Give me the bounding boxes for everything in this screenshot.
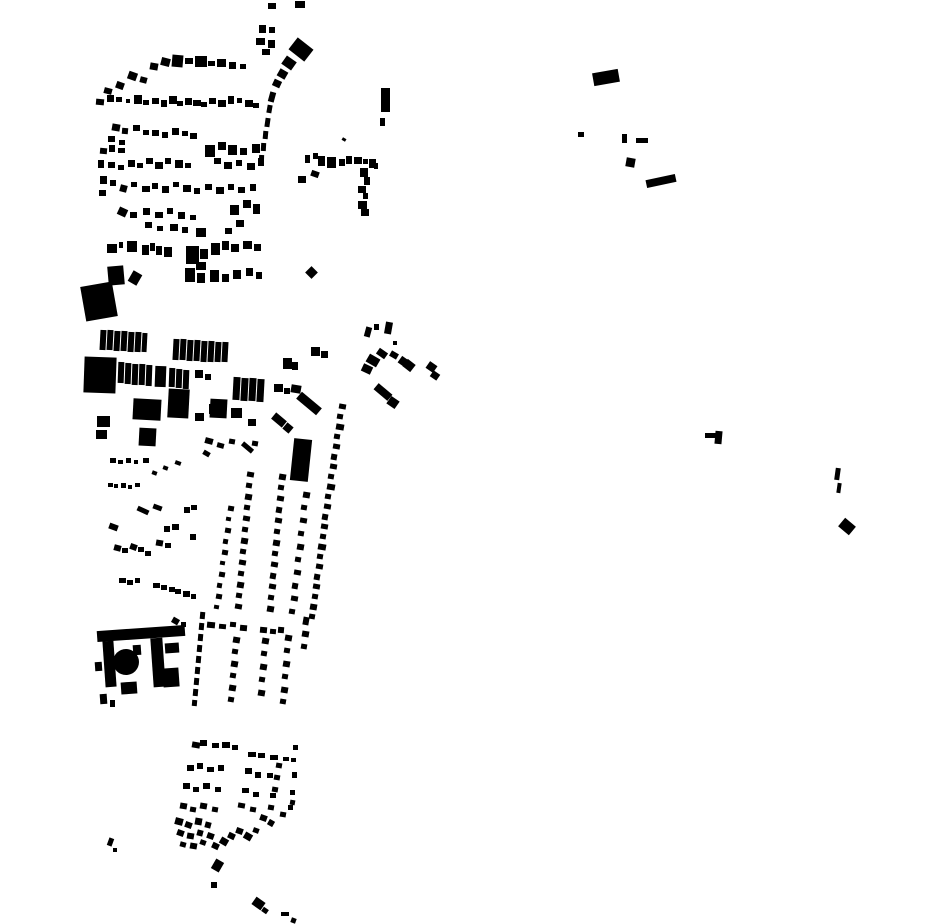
building-footprint [230,205,239,215]
building-footprint [111,123,120,131]
building-footprint [95,662,103,671]
building-footprint [245,493,253,500]
building-footprint [229,684,237,691]
building-footprint [331,454,338,461]
building-footprint [636,138,648,143]
building-footprint [212,807,219,813]
building-footprint [578,132,584,137]
building-footprint [346,156,352,164]
building-footprint [155,162,163,169]
building-footprint [358,201,367,209]
building-footprint [240,64,246,69]
building-footprint [253,103,259,108]
building-footprint [125,363,132,384]
building-footprint [279,473,287,480]
building-footprint [374,324,379,330]
building-footprint [135,483,140,487]
building-footprint [247,163,255,170]
building-footprint [270,755,278,760]
building-footprint [274,384,283,392]
building-footprint [289,609,296,615]
building-footprint [180,802,188,809]
building-footprint [207,767,214,772]
building-footprint [113,848,117,852]
building-footprint [311,347,320,356]
building-footprint [241,537,249,544]
building-footprint [284,388,290,394]
building-footprint [380,118,385,126]
building-footprint [177,101,183,106]
building-footprint [171,55,183,68]
building-footprint [167,208,173,214]
building-footprint [282,674,289,680]
building-footprint [214,605,220,610]
building-footprint [162,667,179,687]
building-footprint [196,656,202,663]
building-footprint [228,96,234,104]
building-footprint [146,158,153,164]
building-footprint [233,636,241,643]
building-footprint [221,342,228,362]
building-footprint [165,543,171,548]
building-footprint [622,134,627,143]
building-footprint [232,745,238,750]
building-footprint [361,209,369,216]
building-footprint [292,583,299,590]
building-footprint [242,788,249,793]
building-footprint [278,485,285,491]
building-footprint [114,484,118,488]
building-footprint [113,331,120,351]
building-footprint [222,274,229,282]
building-footprint [244,505,251,511]
building-footprint [327,157,336,168]
building-footprint [225,528,232,534]
building-footprint [172,339,179,360]
building-footprint [199,623,205,630]
building-footprint [242,527,249,533]
building-footprint [293,745,298,750]
building-footprint [173,182,179,187]
building-footprint [250,807,257,813]
building-footprint [328,474,335,480]
building-footprint [229,439,236,445]
building-footprint [248,378,256,401]
building-footprint [298,176,306,183]
building-footprint [246,268,253,276]
building-footprint [133,125,140,131]
building-footprint [236,160,242,166]
building-footprint [190,534,196,540]
building-footprint [169,96,177,104]
building-footprint [80,281,118,321]
building-footprint [127,580,133,585]
building-footprint [363,159,368,164]
building-footprint [193,340,200,361]
building-footprint [280,812,287,818]
building-footprint [116,97,122,102]
building-footprint [195,413,204,421]
building-footprint [256,38,265,45]
building-footprint [162,132,168,138]
building-footprint [119,242,123,248]
building-footprint [217,59,226,67]
building-footprint [186,340,193,361]
building-footprint [218,765,224,771]
building-footprint [107,95,114,102]
building-footprint [216,187,224,194]
building-footprint [132,364,139,385]
building-footprint [258,753,265,758]
building-footprint [190,133,197,139]
building-footprint [190,215,196,220]
building-footprint [283,660,291,667]
building-footprint [121,483,126,488]
building-footprint [161,585,167,590]
building-footprint [110,700,115,707]
building-footprint [248,419,256,426]
building-footprint [142,333,148,352]
building-footprint [225,228,232,234]
building-footprint [260,627,267,634]
building-footprint [393,341,397,345]
building-footprint [142,186,150,192]
building-footprint [196,262,206,270]
building-footprint [156,539,164,546]
building-footprint [245,100,253,107]
building-footprint [119,578,126,583]
building-footprint [285,634,293,641]
building-footprint [231,660,239,667]
building-footprint [196,228,206,237]
building-footprint [714,431,722,445]
building-footprint [224,162,232,169]
building-footprint [120,331,127,351]
building-footprint [283,358,292,369]
building-footprint [165,643,180,654]
building-footprint [194,817,202,825]
building-footprint [232,649,239,655]
building-footprint [226,517,232,522]
building-footprint [262,49,270,55]
building-footprint [170,224,178,231]
building-footprint [195,56,207,67]
building-footprint [334,434,341,440]
building-footprint [253,792,259,797]
building-footprint [108,162,115,168]
building-footprint [281,686,289,693]
building-footprint [219,624,226,630]
building-footprint [118,148,125,153]
building-footprint [96,430,107,439]
building-footprint [278,627,285,634]
building-footprint [187,832,195,839]
building-footprint [314,574,321,581]
building-footprint [126,99,130,103]
building-footprint [208,61,215,66]
building-footprint [109,145,115,152]
building-footprint [126,458,131,463]
building-footprint [339,159,345,166]
building-footprint [193,689,199,696]
building-footprint [281,912,289,916]
building-footprint [127,332,134,352]
building-footprint [201,102,207,107]
building-footprint [207,622,215,629]
building-footprint [122,548,128,553]
building-footprint [100,148,107,155]
building-footprint [110,458,116,463]
building-footprint [274,775,281,781]
building-footprint [143,100,149,105]
building-footprint [228,145,237,155]
building-footprint [273,539,281,546]
building-footprint [252,441,259,447]
building-footprint [121,681,138,694]
building-footprint [197,273,205,283]
building-footprint [267,773,273,778]
building-footprint [268,595,275,601]
building-footprint [220,561,226,566]
building-footprint [240,625,247,632]
building-footprint [143,130,149,135]
building-footprint [215,787,221,792]
building-footprint [175,589,181,594]
building-footprint [167,388,189,418]
building-footprint [183,591,190,597]
building-footprint [246,483,253,489]
building-footprint [183,370,190,389]
building-footprint [295,557,302,563]
building-footprint [305,155,310,163]
building-footprint [134,460,138,464]
building-footprint [302,630,310,637]
building-footprint [276,763,283,769]
building-footprint [256,379,264,402]
building-footprint [313,153,318,159]
building-footprint [181,622,186,627]
building-footprint [230,622,236,628]
footprint-layer [0,0,930,924]
building-footprint [198,634,204,641]
building-footprint [222,742,230,748]
building-footprint [283,757,289,761]
building-footprint [205,145,215,157]
building-footprint [182,227,188,233]
building-footprint [309,614,316,620]
building-footprint [295,1,305,8]
building-footprint-map [0,0,930,924]
building-footprint [184,507,190,513]
building-footprint [364,177,370,185]
building-footprint [191,505,197,510]
building-footprint [317,554,324,560]
building-footprint [130,212,137,218]
building-footprint [162,186,169,193]
building-footprint [157,226,163,231]
building-footprint [132,398,161,420]
building-footprint [276,507,283,514]
building-footprint [152,130,159,136]
building-footprint [209,404,217,414]
building-footprint [186,246,199,264]
building-footprint [211,882,217,888]
building-footprint [142,245,149,255]
building-footprint [216,594,223,600]
building-footprint [200,341,207,362]
building-footprint [358,186,366,193]
building-footprint [290,790,295,795]
building-footprint [118,362,125,383]
building-footprint [236,220,244,227]
building-footprint [337,414,344,420]
building-footprint [143,208,150,215]
building-footprint [205,184,212,190]
building-footprint [354,157,362,164]
building-footprint [218,142,226,150]
building-footprint [256,272,262,279]
building-footprint [145,551,151,556]
building-footprint [182,131,188,136]
building-footprint [135,578,140,583]
building-footprint [185,98,192,105]
building-footprint [245,768,252,774]
building-footprint [303,491,311,498]
building-footprint [152,183,158,189]
building-footprint [290,384,301,394]
building-footprint [187,765,194,771]
building-footprint [128,485,132,489]
building-footprint [231,408,242,418]
building-footprint [236,593,243,599]
building-footprint [191,594,196,599]
building-footprint [214,158,221,164]
building-footprint [128,160,135,167]
building-footprint [255,772,261,778]
building-footprint [268,805,275,811]
building-footprint [240,148,247,155]
building-footprint [248,752,256,757]
building-footprint [185,163,191,168]
building-footprint [214,342,221,362]
building-footprint [250,184,256,191]
building-footprint [119,140,125,145]
building-footprint [211,243,220,255]
building-footprint [258,689,266,696]
building-footprint [118,165,124,170]
building-footprint [237,98,242,103]
building-footprint [205,374,211,380]
map-background [0,0,930,924]
building-footprint [320,534,327,540]
building-footprint [238,187,245,193]
building-footprint [210,270,219,282]
building-footprint [200,740,207,746]
building-footprint [301,644,308,650]
building-footprint [263,131,269,139]
building-footprint [193,100,201,106]
building-footprint [217,583,223,589]
building-footprint [312,594,319,600]
building-footprint [185,58,193,64]
building-footprint [164,526,170,532]
building-footprint [310,603,318,610]
building-footprint [262,637,270,644]
building-footprint [230,673,237,679]
building-footprint [229,62,236,69]
building-footprint [118,460,123,464]
building-footprint [318,156,325,166]
building-footprint [291,758,296,762]
building-footprint [240,378,248,401]
building-footprint [274,529,281,535]
building-footprint [272,551,279,557]
building-footprint [108,483,113,487]
building-footprint [252,144,260,153]
building-footprint [267,605,275,612]
building-footprint [297,543,305,550]
building-footprint [260,663,268,670]
building-footprint [272,787,279,793]
building-footprint [197,763,203,769]
building-footprint [165,158,171,164]
building-footprint [150,243,155,251]
building-footprint [363,193,368,199]
building-footprint [259,25,266,33]
building-footprint [261,143,266,151]
building-footprint [195,667,201,674]
building-footprint [138,547,144,552]
building-footprint [127,241,137,252]
building-footprint [258,158,264,166]
building-footprint [254,244,261,251]
building-footprint [156,246,162,255]
building-footprint [207,341,214,362]
building-footprint [108,136,115,142]
building-footprint [222,550,229,556]
building-footprint [134,95,142,104]
building-footprint [146,365,153,386]
building-footprint [183,783,190,789]
building-footprint [164,247,172,257]
building-footprint [325,494,332,500]
building-footprint [360,168,368,177]
building-footprint [155,212,163,218]
building-footprint [110,180,116,186]
building-footprint [209,98,216,104]
building-footprint [253,204,260,214]
building-footprint [301,505,308,511]
building-footprint [228,184,234,190]
building-footprint [172,524,179,530]
building-footprint [280,699,287,705]
building-footprint [212,743,219,748]
building-footprint [192,700,198,706]
building-footprint [288,805,293,810]
building-footprint [155,366,167,387]
building-footprint [625,157,635,167]
building-footprint [298,531,305,537]
building-footprint [240,549,247,555]
building-footprint [100,176,107,184]
building-footprint [149,62,158,70]
building-footprint [223,539,229,545]
building-footprint [381,88,390,112]
building-footprint [143,458,149,463]
building-footprint [99,190,106,196]
building-footprint-rotunda [113,649,139,675]
building-footprint [231,244,239,252]
